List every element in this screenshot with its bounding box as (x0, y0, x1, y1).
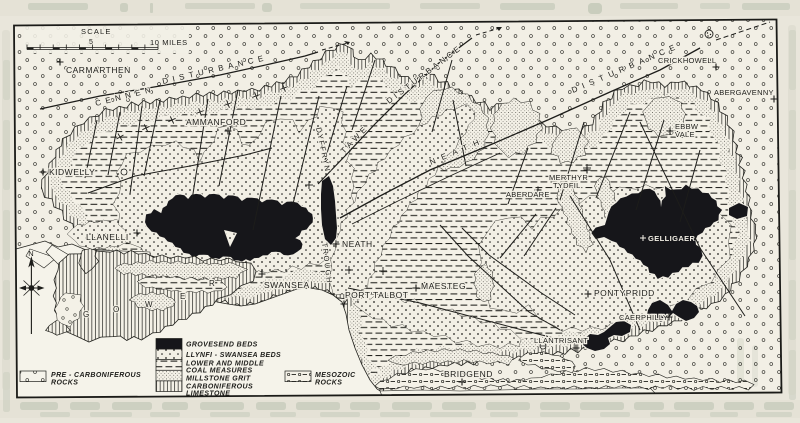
svg-text:LOWER AND MIDDLE: LOWER AND MIDDLE (186, 361, 264, 368)
svg-text:N: N (28, 249, 33, 258)
svg-text:PRE - CARBONIFEROUS: PRE - CARBONIFEROUS (51, 372, 141, 379)
svg-text:GELLIGAER: GELLIGAER (648, 234, 696, 243)
svg-text:PORT TALBOT: PORT TALBOT (345, 290, 408, 300)
svg-text:R: R (209, 279, 215, 288)
svg-text:AMMANFORD: AMMANFORD (186, 117, 246, 127)
svg-text:10 MILES: 10 MILES (150, 38, 188, 47)
svg-text:W: W (145, 300, 153, 309)
svg-text:CARBONIFEROUS: CARBONIFEROUS (186, 384, 253, 391)
svg-text:CRICKHOWELL: CRICKHOWELL (658, 56, 716, 65)
svg-text:ABERGAVENNY: ABERGAVENNY (714, 88, 774, 97)
svg-text:G: G (83, 310, 89, 319)
svg-text:VALE: VALE (675, 130, 695, 139)
svg-text:MAESTEG: MAESTEG (421, 281, 466, 291)
svg-text:SCALE: SCALE (81, 27, 112, 36)
svg-text:BRIDGEND: BRIDGEND (444, 369, 493, 379)
svg-text:COAL MEASURES: COAL MEASURES (186, 368, 253, 375)
svg-text:KIDWELLY: KIDWELLY (49, 167, 95, 177)
svg-text:CAERPHILLY: CAERPHILLY (619, 313, 668, 322)
svg-text:PONTYPRIDD: PONTYPRIDD (594, 288, 655, 298)
svg-text:NEATH: NEATH (342, 239, 373, 249)
svg-text:E: E (180, 292, 185, 301)
svg-text:O: O (113, 305, 119, 314)
svg-text:TYDFIL: TYDFIL (553, 181, 581, 190)
svg-text:CARMARTHEN: CARMARTHEN (66, 65, 131, 75)
svg-text:SWANSEA: SWANSEA (264, 280, 310, 290)
svg-text:GROVESEND BEDS: GROVESEND BEDS (186, 342, 258, 349)
svg-text:LLANTRISANT: LLANTRISANT (534, 336, 588, 345)
svg-text:LLYNFI - SWANSEA BEDS: LLYNFI - SWANSEA BEDS (186, 352, 281, 359)
svg-text:ROCKS: ROCKS (51, 380, 78, 387)
svg-text:ABERDARE: ABERDARE (506, 190, 550, 199)
svg-text:ROCKS: ROCKS (315, 380, 342, 387)
svg-text:LLANELLI: LLANELLI (86, 232, 129, 242)
svg-text:MESOZOIC: MESOZOIC (315, 372, 356, 379)
svg-text:MILLSTONE GRIT: MILLSTONE GRIT (186, 376, 251, 383)
